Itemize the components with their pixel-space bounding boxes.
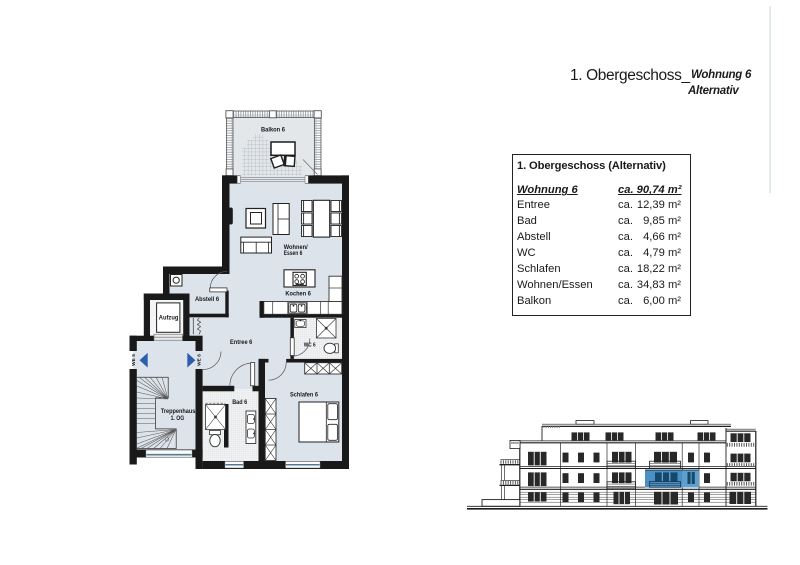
svg-text:Abstell 6: Abstell 6 <box>195 296 219 303</box>
svg-text:Bad 6: Bad 6 <box>232 399 247 406</box>
svg-text:Schlafen 6: Schlafen 6 <box>290 392 318 399</box>
svg-text:Balkon 6: Balkon 6 <box>261 126 285 133</box>
svg-text:WC 6: WC 6 <box>304 342 316 348</box>
svg-text:WE 5: WE 5 <box>131 354 137 366</box>
svg-text:WE 6: WE 6 <box>196 354 202 366</box>
svg-text:Aufzug: Aufzug <box>159 315 179 322</box>
svg-text:Entree 6: Entree 6 <box>230 339 252 346</box>
svg-text:Kochen 6: Kochen 6 <box>285 291 311 298</box>
svg-text:1. OG: 1. OG <box>171 415 185 422</box>
svg-text:Essen 6: Essen 6 <box>284 250 303 257</box>
